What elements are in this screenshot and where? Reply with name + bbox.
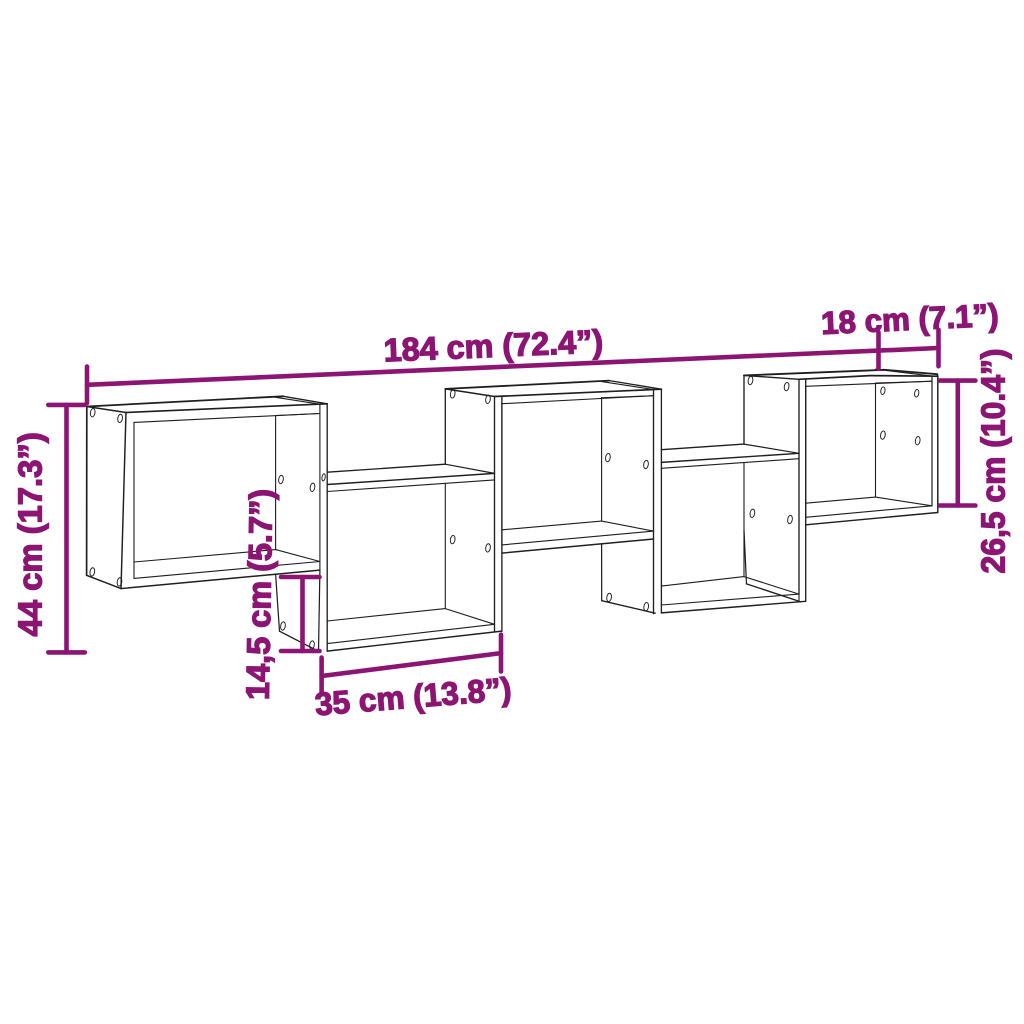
svg-text:14,5 cm (5.7”): 14,5 cm (5.7”) <box>240 489 280 701</box>
svg-text:26,5 cm (10.4”): 26,5 cm (10.4”) <box>976 349 1013 574</box>
svg-text:44 cm (17.3”): 44 cm (17.3”) <box>12 432 49 636</box>
